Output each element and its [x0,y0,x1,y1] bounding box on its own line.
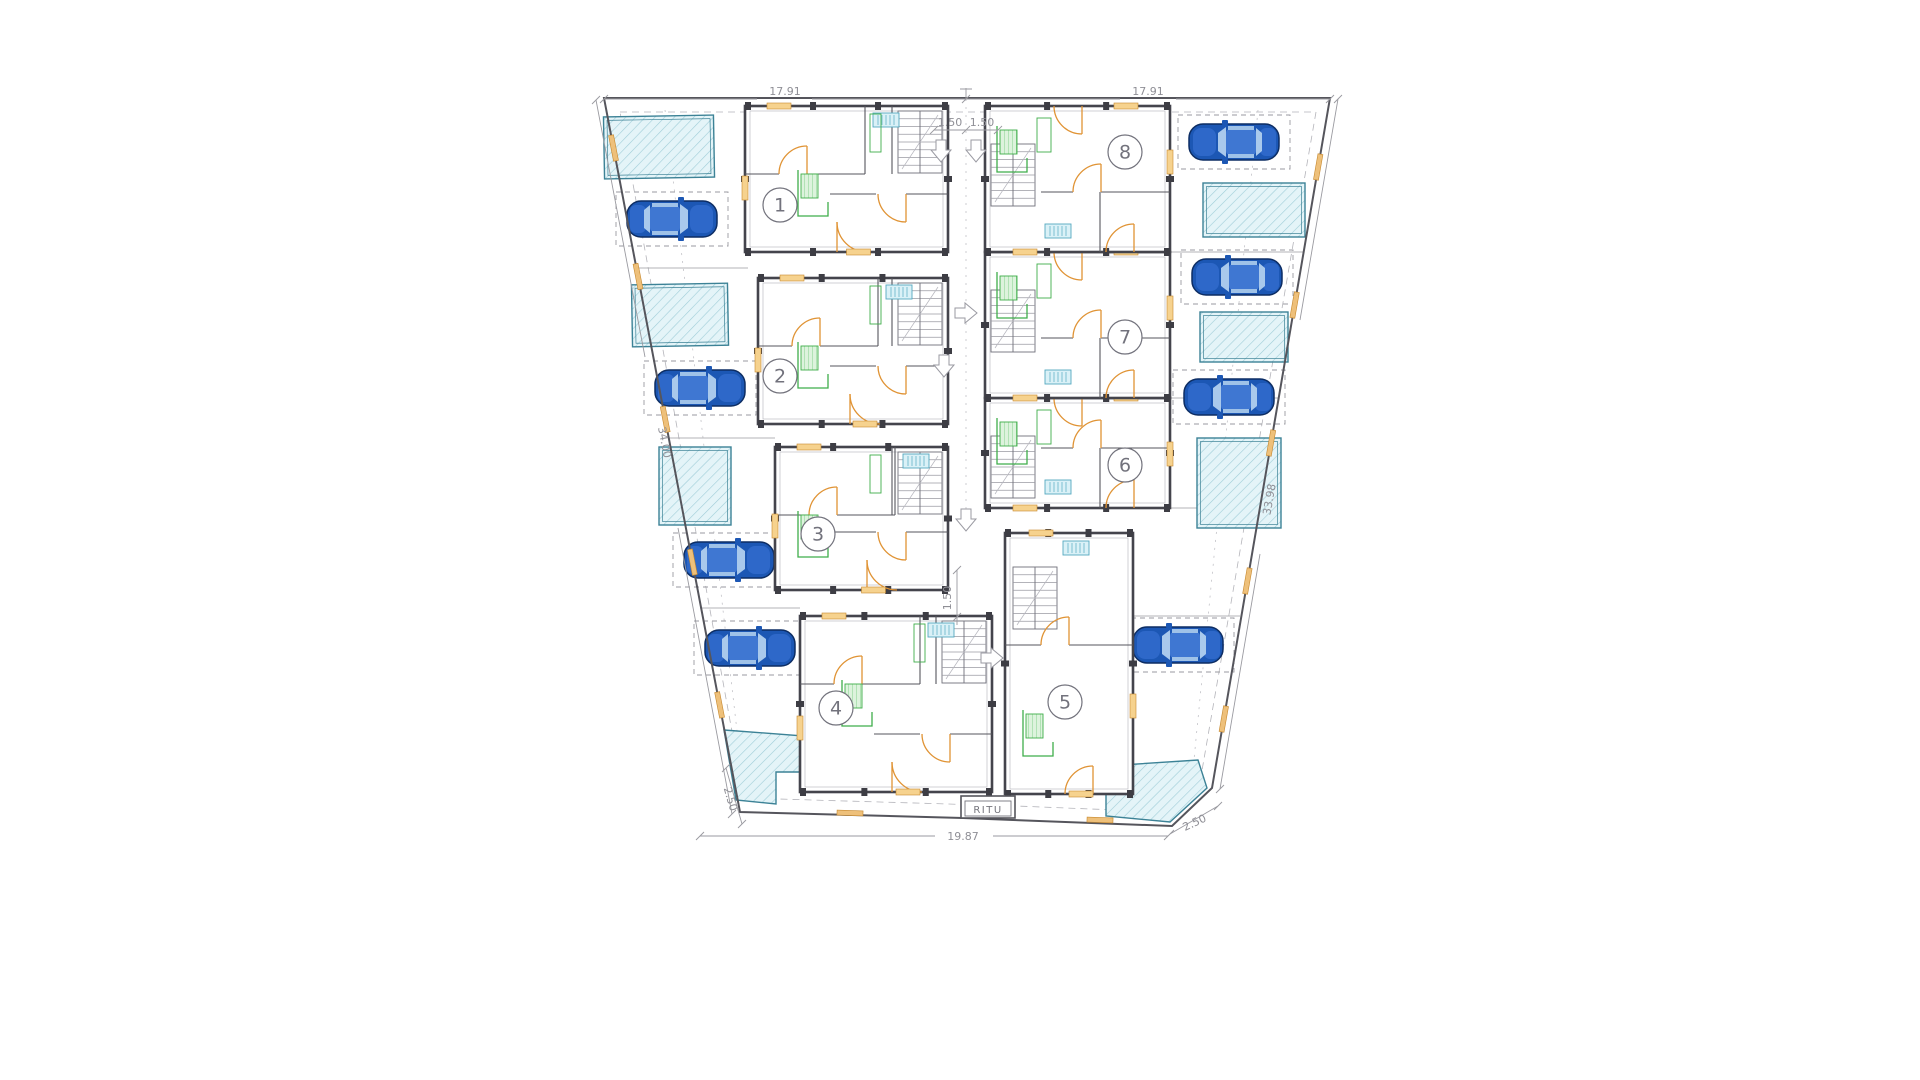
car-icon [1189,120,1279,164]
boundary-wall-segment [1243,568,1252,594]
car-icon [627,197,717,241]
wall-pier [988,701,996,707]
wall-pier [942,274,948,282]
window-sill [797,716,803,740]
unit-number-text: 4 [830,698,842,720]
wall-pier [745,248,751,256]
window-sill [755,348,761,372]
unit-number-badge: 6 [1108,448,1142,482]
car-icon [1184,375,1274,419]
wall-pier [1044,102,1050,110]
appliance-icon [1000,276,1017,300]
wall-pier [758,274,764,282]
dimension-label: 1.50 [941,586,954,611]
dimension-label: 1.50 [970,116,995,129]
unit-number-text: 8 [1119,142,1131,164]
wall-pier [1164,394,1170,402]
wall-pier [923,612,929,620]
appliance-icon [1026,714,1043,738]
buildings-group [741,102,1174,798]
appliance-icon [1000,130,1017,154]
window-sill [1029,530,1053,536]
wall-pier [819,274,825,282]
wall-pier [775,443,781,451]
boundary-wall-segment [837,810,863,816]
boundary-wall-segment [715,692,725,718]
unit-number-badge: 8 [1108,135,1142,169]
wall-pier [810,102,816,110]
wall-pier [830,443,836,451]
wall-pier [942,102,948,110]
window-sill [847,249,871,255]
window-sill [772,514,778,538]
wall-pier [1129,661,1137,667]
cars-group [627,120,1282,670]
wall-pier [1005,529,1011,537]
pool [1203,183,1305,237]
ritu-box: RITU [961,796,1015,818]
wall-pier [1164,504,1170,512]
wall-pier [1164,248,1170,256]
wall-pier [1044,504,1050,512]
wall-pier [985,102,991,110]
unit-number-text: 7 [1119,327,1131,349]
pool-hatch [1203,183,1305,237]
wall-pier [944,348,952,354]
car-icon [1133,623,1223,667]
car-icon [705,626,795,670]
window-sill [1130,694,1136,718]
wall-pier [1001,661,1009,667]
wall-pier [796,701,804,707]
window-sill [1167,296,1173,320]
unit-number-text: 6 [1119,455,1131,477]
car-icon [684,538,774,582]
wall-pier [879,274,885,282]
wall-pier [986,788,992,796]
boundary-wall-segment [1313,154,1322,180]
pool-hatch [603,115,714,179]
wall-pier [1044,248,1050,256]
wall-pier [1166,176,1174,182]
window-sill [797,444,821,450]
dimension-label: 19.87 [947,830,979,843]
radiator-icon [903,454,929,468]
wall-pier [885,586,891,594]
radiator-icon [1045,370,1071,384]
building-unit-2 [754,274,952,428]
window-sill [862,587,886,593]
window-sill [742,176,748,200]
unit-number-badge: 7 [1108,320,1142,354]
radiator-icon [1045,480,1071,494]
stairs-icon [1013,567,1057,629]
unit-number-badge: 1 [763,188,797,222]
dimension-label: 34.00 [655,426,674,459]
window-sill [1013,249,1037,255]
wall-pier [745,102,751,110]
ritu-label: RITU [973,805,1002,816]
window-sill [767,103,791,109]
wall-pier [923,788,929,796]
unit-number-text: 5 [1059,692,1071,714]
unit-number-badge: 2 [763,359,797,393]
wall-pier [775,586,781,594]
window-sill [853,421,877,427]
unit-number-text: 2 [774,366,786,388]
radiator-icon [1045,224,1071,238]
wall-pier [985,248,991,256]
wall-pier [1127,790,1133,798]
floor-plan-canvas: 17.9117.911.501.5034.0033.981.502.5019.8… [0,0,1920,1080]
wall-pier [1086,529,1092,537]
wall-pier [861,612,867,620]
window-sill [1167,442,1173,466]
window-sill [896,789,920,795]
building-unit-7 [981,248,1174,402]
radiator-icon [886,285,912,299]
wall-pier [875,248,881,256]
building-unit-1 [741,102,952,256]
wall-pier [944,176,952,182]
wall-pier [758,420,764,428]
appliance-icon [801,174,818,198]
building-unit-5 [1001,529,1137,798]
wall-pier [879,420,885,428]
wall-pier [942,420,948,428]
car-icon [1192,255,1282,299]
wall-pier [830,586,836,594]
wall-pier [944,516,952,522]
boundary-wall-segment [1219,706,1228,732]
entry-arrow-icon [955,303,977,323]
appliance-icon [801,346,818,370]
radiator-icon [873,113,899,127]
wall-pier [1045,790,1051,798]
unit-number-text: 3 [812,524,824,546]
wall-pier [875,102,881,110]
wall-pier [942,248,948,256]
wall-pier [942,443,948,451]
radiator-icon [928,623,954,637]
stairs-icon [898,111,942,173]
pool [603,115,714,179]
entry-arrow-icon [956,509,976,531]
window-sill [822,613,846,619]
building-unit-6 [981,394,1174,512]
unit-number-badge: 4 [819,691,853,725]
wall-pier [981,322,989,328]
wall-pier [1166,322,1174,328]
window-sill [1069,791,1093,797]
wall-pier [1127,529,1133,537]
entry-arrow-icon [966,140,986,162]
wall-pier [861,788,867,796]
boundary-wall-segment [1290,292,1299,318]
site-plan-page: 17.9117.911.501.5034.0033.981.502.5019.8… [0,0,1920,1080]
car-icon [655,366,745,410]
wall-pier [986,612,992,620]
wall-pier [981,450,989,456]
wall-pier [985,504,991,512]
wall-pier [810,248,816,256]
dimension-label: 17.91 [1132,85,1164,98]
unit-number-badge: 5 [1048,685,1082,719]
wall-pier [800,612,806,620]
wall-pier [885,443,891,451]
dimension-label: 17.91 [769,85,801,98]
unit-number-text: 1 [774,195,786,217]
window-sill [780,275,804,281]
pool-hatch [1200,312,1288,362]
wall-pier [1103,102,1109,110]
building-unit-8 [981,102,1174,256]
wall-pier [981,176,989,182]
window-sill [1013,505,1037,511]
boundary-wall-segment [1087,817,1113,823]
unit-number-badge: 3 [801,517,835,551]
radiator-icon [1063,541,1089,555]
wall-pier [800,788,806,796]
building-unit-3 [771,443,952,594]
pool [659,447,731,525]
wall-pier [985,394,991,402]
window-sill [1167,150,1173,174]
wall-pier [819,420,825,428]
dimension-label: 1.50 [938,116,963,129]
window-sill [1013,395,1037,401]
pool-hatch [659,447,731,525]
appliance-icon [1000,422,1017,446]
pool [1200,312,1288,362]
wall-pier [1044,394,1050,402]
window-sill [1114,103,1138,109]
wall-pier [1164,102,1170,110]
